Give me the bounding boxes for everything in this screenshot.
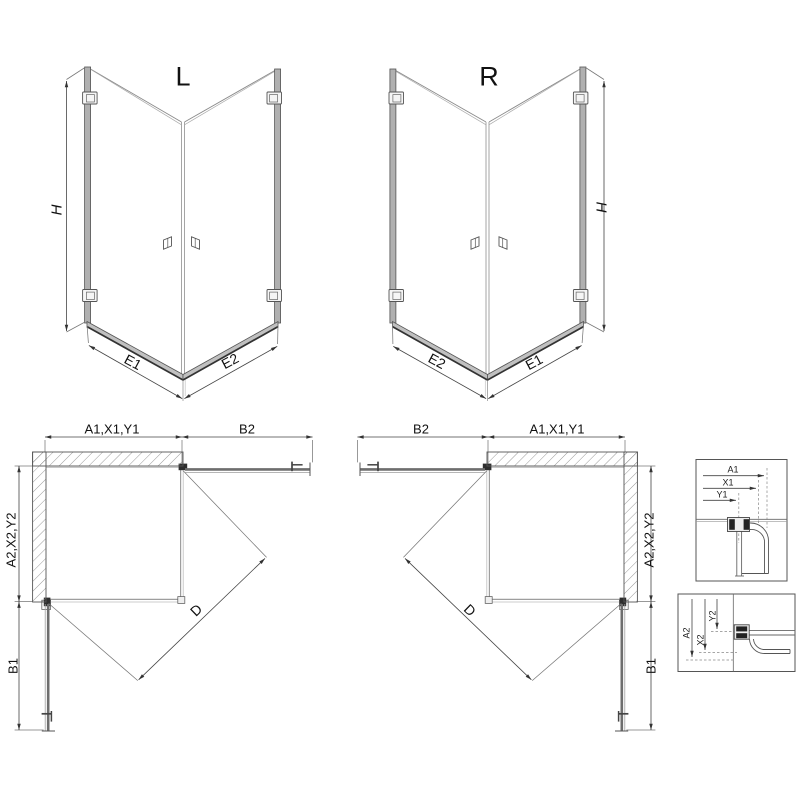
extension-lines xyxy=(15,440,313,730)
dim-label-height-l: H xyxy=(50,205,65,216)
dim-label-a1x1y1-r: A1,X1,Y1 xyxy=(530,423,585,436)
plan-view-drawing-mirrored xyxy=(357,437,655,731)
technical-drawing-sheet: L R H H E1 E2 E2 E1 A1,X1,Y1 B2 B2 A1,X1… xyxy=(0,0,800,800)
detail-dim-y1: Y1 xyxy=(716,491,727,500)
dim-label-b2-r: B2 xyxy=(413,423,429,436)
front-view-drawing xyxy=(67,67,282,401)
detail-dim-a2: A2 xyxy=(683,627,692,638)
detail-dim-y2: Y2 xyxy=(709,610,718,621)
hinge xyxy=(267,290,282,302)
hinge xyxy=(83,92,98,104)
hinge xyxy=(83,290,98,302)
dim-label-b1-r: B1 xyxy=(645,658,658,674)
corner-profile xyxy=(178,597,185,604)
dim-label-a1x1y1-l: A1,X1,Y1 xyxy=(85,423,140,436)
plan-view-drawing xyxy=(15,437,313,731)
dim-label-a2x2y2-r: A2,X2,Y2 xyxy=(643,513,656,568)
dim-label-b2-l: B2 xyxy=(239,423,255,436)
hinge xyxy=(267,92,282,104)
wall-post xyxy=(85,67,91,323)
dim-label-height-r: H xyxy=(594,202,609,213)
drawing-linework xyxy=(0,0,800,800)
detail-horizontal-section xyxy=(696,460,787,582)
front-view-drawing-mirrored xyxy=(389,67,604,401)
front-view-l-title: L xyxy=(175,64,190,91)
open-door-top xyxy=(185,462,310,476)
door-handle xyxy=(164,237,172,249)
open-door-side xyxy=(42,604,55,731)
wall-hatching xyxy=(33,452,638,602)
dim-label-a2x2y2-l: A2,X2,Y2 xyxy=(5,513,18,568)
detail-dim-a1: A1 xyxy=(727,466,738,475)
wall-post xyxy=(275,69,281,323)
door-handle xyxy=(192,237,200,249)
detail-vertical-section xyxy=(678,594,795,672)
dim-label-b1-l: B1 xyxy=(7,658,20,674)
detail-dim-x1: X1 xyxy=(722,479,733,488)
front-view-r-title: R xyxy=(479,64,499,91)
dimension-lines xyxy=(19,437,313,730)
detail-dim-x2: X2 xyxy=(697,634,706,645)
